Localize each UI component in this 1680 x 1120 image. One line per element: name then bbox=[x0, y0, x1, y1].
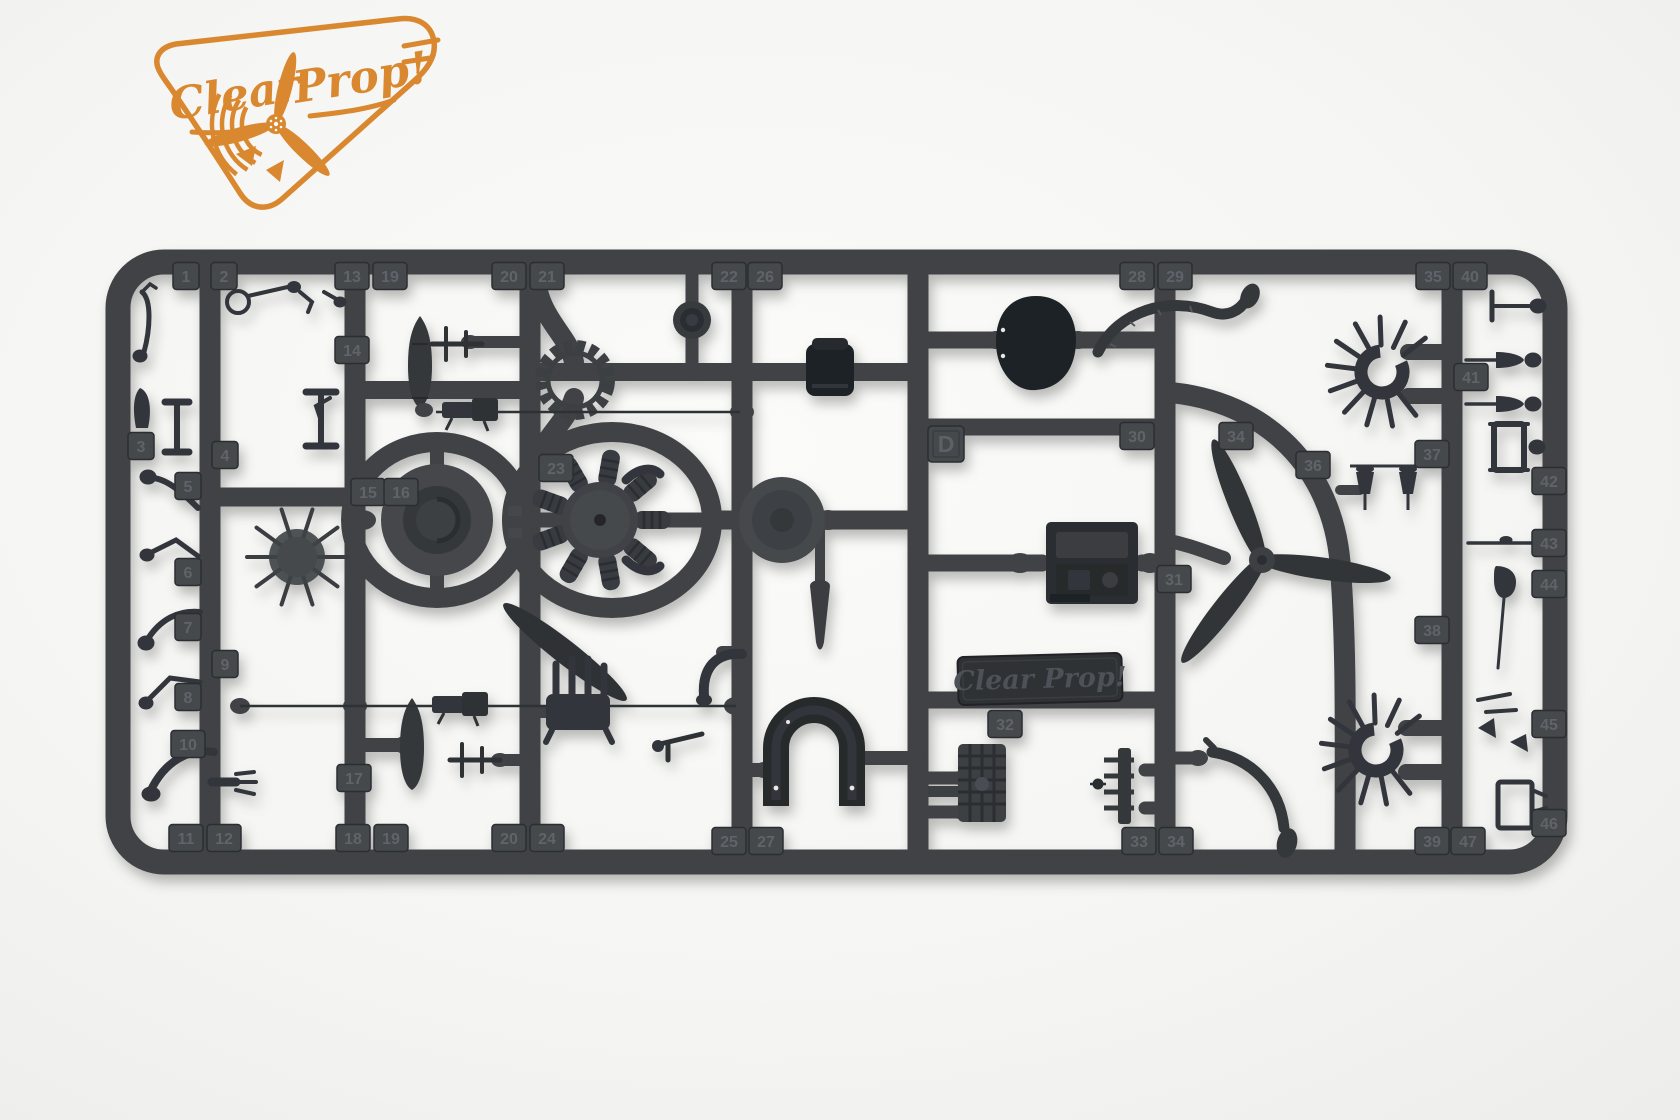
svg-text:6: 6 bbox=[184, 565, 193, 582]
part-number-tab: 7 bbox=[175, 614, 201, 641]
svg-text:20: 20 bbox=[500, 269, 518, 286]
part-number-tab: 15 bbox=[351, 479, 385, 506]
svg-text:41: 41 bbox=[1462, 370, 1480, 387]
part-number-tab: 36 bbox=[1296, 452, 1330, 479]
part-number-tab: 5 bbox=[175, 473, 201, 500]
part-number-tab: 22 bbox=[712, 263, 746, 290]
svg-text:47: 47 bbox=[1459, 834, 1477, 851]
part-number-tab: 20 bbox=[492, 825, 526, 852]
part-number-tab: 19 bbox=[374, 825, 408, 852]
part-number-tab: 10 bbox=[171, 731, 205, 758]
svg-text:22: 22 bbox=[720, 269, 738, 286]
svg-text:27: 27 bbox=[757, 834, 775, 851]
svg-text:34: 34 bbox=[1167, 834, 1185, 851]
part-number-tab: 47 bbox=[1451, 828, 1485, 855]
svg-text:36: 36 bbox=[1304, 458, 1322, 475]
svg-text:8: 8 bbox=[184, 690, 193, 707]
part-number-tab: 9 bbox=[212, 651, 238, 678]
svg-text:18: 18 bbox=[344, 831, 362, 848]
part-engine-mount-box bbox=[1046, 522, 1138, 604]
svg-text:31: 31 bbox=[1165, 572, 1183, 589]
part-number-tab: 29 bbox=[1158, 263, 1192, 290]
part-number-tab: 4 bbox=[212, 442, 238, 469]
part-number-tab: 27 bbox=[749, 828, 783, 855]
nameplate: Clear Prop! bbox=[953, 653, 1128, 706]
part-number-tab: 45 bbox=[1532, 711, 1566, 738]
part-number-tab: 20 bbox=[492, 263, 526, 290]
svg-text:38: 38 bbox=[1423, 623, 1441, 640]
svg-text:35: 35 bbox=[1424, 269, 1442, 286]
part-number-tab: 34 bbox=[1159, 828, 1193, 855]
svg-text:39: 39 bbox=[1423, 834, 1441, 851]
part-number-tab: 23 bbox=[539, 455, 573, 482]
part-number-tab: 19 bbox=[373, 263, 407, 290]
part-number-tab: 1 bbox=[173, 263, 199, 290]
svg-text:12: 12 bbox=[215, 831, 233, 848]
sprue-letter-tab: D bbox=[928, 426, 964, 462]
svg-text:13: 13 bbox=[343, 269, 361, 286]
svg-text:15: 15 bbox=[359, 485, 377, 502]
svg-text:44: 44 bbox=[1540, 577, 1558, 594]
svg-text:30: 30 bbox=[1128, 429, 1146, 446]
svg-text:17: 17 bbox=[345, 771, 363, 788]
svg-text:10: 10 bbox=[179, 737, 197, 754]
svg-text:9: 9 bbox=[221, 657, 230, 674]
part-number-tab: 18 bbox=[336, 825, 370, 852]
product-photo: Clear Prop! bbox=[0, 0, 1680, 1120]
svg-text:43: 43 bbox=[1540, 536, 1558, 553]
svg-text:5: 5 bbox=[184, 479, 193, 496]
svg-text:29: 29 bbox=[1166, 269, 1184, 286]
svg-text:4: 4 bbox=[221, 448, 230, 465]
part-number-tab: 2 bbox=[211, 263, 237, 290]
svg-text:14: 14 bbox=[343, 343, 361, 360]
part-number-tab: 21 bbox=[530, 263, 564, 290]
svg-text:19: 19 bbox=[382, 831, 400, 848]
part-number-tab: 37 bbox=[1415, 441, 1449, 468]
svg-text:46: 46 bbox=[1540, 816, 1558, 833]
part-number-tab: 39 bbox=[1415, 828, 1449, 855]
svg-text:37: 37 bbox=[1423, 447, 1441, 464]
svg-text:3: 3 bbox=[137, 439, 146, 456]
part-number-tab: 28 bbox=[1120, 263, 1154, 290]
sprue-letter: D bbox=[938, 431, 955, 457]
svg-text:1: 1 bbox=[182, 269, 191, 286]
part-number-tab: 17 bbox=[337, 765, 371, 792]
part-number-tab: 31 bbox=[1157, 566, 1191, 593]
svg-text:26: 26 bbox=[756, 269, 774, 286]
part-number-tab: 42 bbox=[1532, 468, 1566, 495]
svg-text:2: 2 bbox=[220, 269, 229, 286]
part-number-tab: 8 bbox=[175, 684, 201, 711]
svg-text:20: 20 bbox=[500, 831, 518, 848]
part-number-tab: 16 bbox=[384, 479, 418, 506]
part-number-tab: 3 bbox=[128, 433, 154, 460]
part-number-tab: 24 bbox=[530, 825, 564, 852]
part-number-tab: 30 bbox=[1120, 423, 1154, 450]
part-engine-cowling-panel bbox=[996, 296, 1076, 390]
part-number-tab: 14 bbox=[335, 337, 369, 364]
part-number-tab: 11 bbox=[169, 825, 203, 852]
svg-text:11: 11 bbox=[178, 831, 195, 848]
part-number-tab: 13 bbox=[335, 263, 369, 290]
part-main-wheel-disc bbox=[739, 477, 825, 563]
svg-text:28: 28 bbox=[1128, 269, 1146, 286]
svg-text:21: 21 bbox=[538, 269, 556, 286]
part-number-tab: 12 bbox=[207, 825, 241, 852]
photo-background bbox=[0, 0, 1680, 1120]
part-number-tab: 40 bbox=[1453, 263, 1487, 290]
part-number-tab: 43 bbox=[1532, 530, 1566, 557]
part-number-tab: 33 bbox=[1122, 828, 1156, 855]
part-number-tab: 34 bbox=[1219, 423, 1253, 450]
svg-text:16: 16 bbox=[392, 485, 410, 502]
part-number-tab: 38 bbox=[1415, 617, 1449, 644]
svg-text:32: 32 bbox=[996, 717, 1014, 734]
svg-text:40: 40 bbox=[1461, 269, 1479, 286]
svg-text:42: 42 bbox=[1540, 474, 1558, 491]
part-number-tab: 26 bbox=[748, 263, 782, 290]
sprue-photo-scene: Clear Prop! bbox=[0, 0, 1680, 1120]
nameplate-text: Clear Prop! bbox=[953, 662, 1127, 698]
part-number-tab: 46 bbox=[1532, 810, 1566, 837]
part-number-tab: 41 bbox=[1454, 364, 1488, 391]
part-number-tab: 35 bbox=[1416, 263, 1450, 290]
svg-text:7: 7 bbox=[184, 620, 193, 637]
svg-text:34: 34 bbox=[1227, 429, 1245, 446]
svg-text:23: 23 bbox=[547, 461, 565, 478]
svg-text:45: 45 bbox=[1540, 717, 1558, 734]
part-number-tab: 25 bbox=[712, 828, 746, 855]
part-number-tab: 44 bbox=[1532, 571, 1566, 598]
svg-text:19: 19 bbox=[381, 269, 399, 286]
svg-text:25: 25 bbox=[720, 834, 738, 851]
part-number-tab: 32 bbox=[988, 711, 1022, 738]
part-top-wheel bbox=[673, 301, 711, 339]
svg-text:33: 33 bbox=[1130, 834, 1148, 851]
part-number-tab: 6 bbox=[175, 559, 201, 586]
svg-text:24: 24 bbox=[538, 831, 556, 848]
